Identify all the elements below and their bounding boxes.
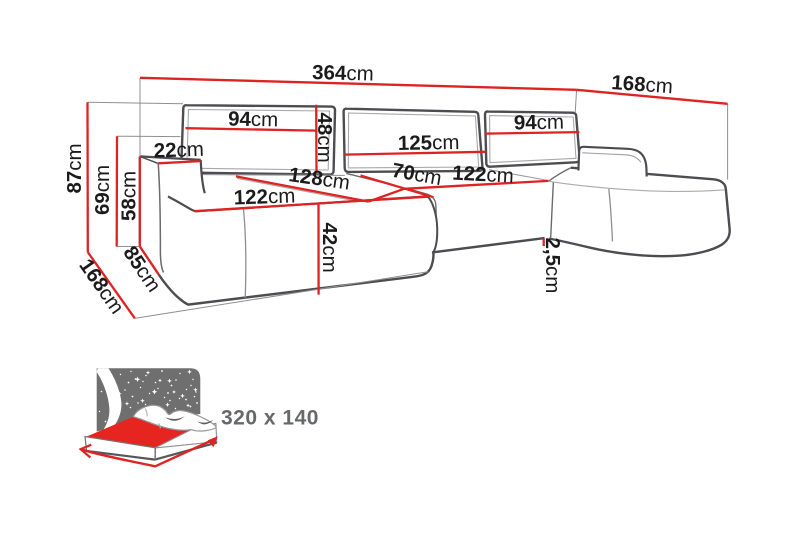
- svg-text:94cm: 94cm: [514, 111, 565, 135]
- svg-text:320 x 140: 320 x 140: [221, 407, 319, 430]
- svg-text:69cm: 69cm: [91, 165, 114, 215]
- svg-text:42cm: 42cm: [318, 223, 341, 273]
- svg-text:2,5cm: 2,5cm: [541, 238, 564, 294]
- svg-text:85cm: 85cm: [118, 242, 165, 296]
- svg-text:168cm: 168cm: [611, 71, 674, 98]
- svg-text:22cm: 22cm: [153, 138, 204, 163]
- svg-text:94cm: 94cm: [228, 108, 279, 132]
- svg-text:122cm: 122cm: [233, 184, 295, 209]
- svg-text:122cm: 122cm: [452, 162, 515, 188]
- svg-text:125cm: 125cm: [398, 131, 460, 155]
- svg-text:87cm: 87cm: [63, 143, 86, 193]
- svg-text:364cm: 364cm: [312, 61, 374, 86]
- svg-text:48cm: 48cm: [313, 113, 336, 163]
- svg-text:58cm: 58cm: [118, 171, 141, 221]
- svg-text:168cm: 168cm: [74, 255, 128, 319]
